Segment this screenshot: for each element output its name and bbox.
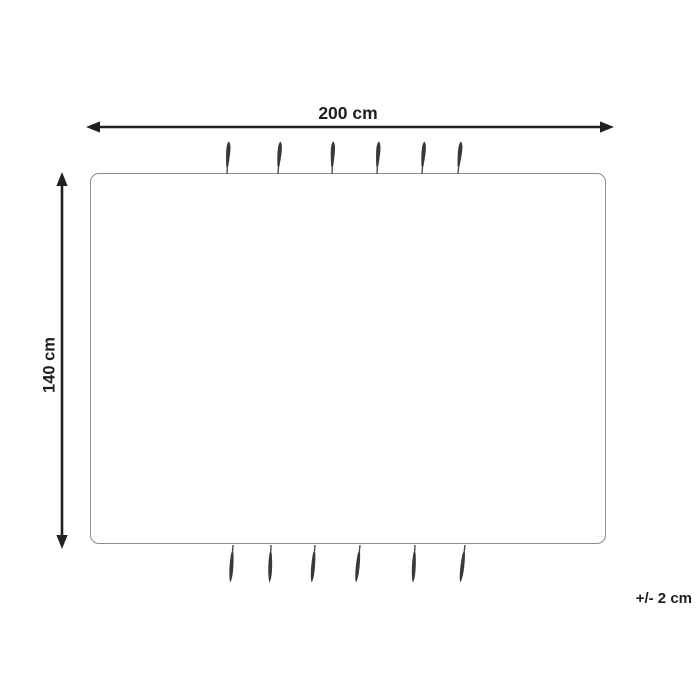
- tassel-icon: [407, 545, 421, 584]
- tassel-icon: [454, 544, 471, 583]
- tassel-icon: [264, 545, 277, 583]
- tassel-icon: [416, 141, 430, 175]
- blanket-outline: [90, 173, 606, 544]
- height-arrow-icon: [54, 171, 70, 550]
- tassel-icon: [306, 544, 321, 583]
- dimension-diagram: 200 cm 140 cm: [0, 0, 700, 700]
- tolerance-label: +/- 2 cm: [558, 590, 692, 607]
- tassel-icon: [452, 141, 467, 175]
- width-arrow-icon: [85, 119, 615, 135]
- tassel-icon: [350, 544, 366, 583]
- tassel-icon: [371, 141, 385, 175]
- tassel-icon: [326, 141, 339, 174]
- tassel-icon: [221, 141, 235, 175]
- tassel-icon: [224, 545, 239, 584]
- tassel-icon: [272, 141, 286, 175]
